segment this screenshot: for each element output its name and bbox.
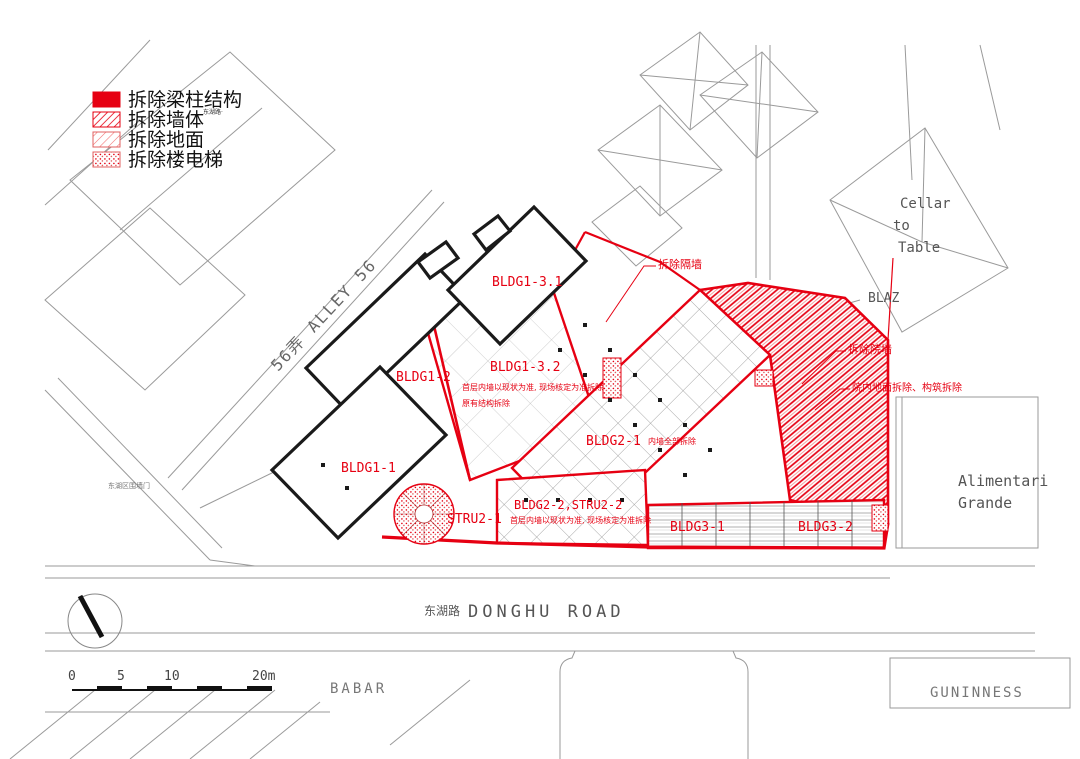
label-cellar-3: Table <box>898 240 940 256</box>
legend-swatch-structure <box>93 92 120 107</box>
label-bldg2-2: BLDG2-2,STRU2-2 <box>514 498 622 512</box>
annotation-partition-wall: 拆除隔墙 <box>658 257 702 271</box>
scale-tick-20m: 20m <box>252 669 276 684</box>
demolition-site-plan: 拆除梁柱结构 拆除墙体 拆除地面 拆除楼电梯 东湖路· BLDG1-1 BLDG… <box>0 0 1080 759</box>
legend-stamp: 东湖路· <box>203 108 223 116</box>
legend-swatch-stair <box>93 152 120 167</box>
scale-tick-10: 10 <box>164 669 180 684</box>
label-guninness: GUNINNESS <box>930 685 1024 701</box>
label-bldg2-1-note: 内墙全部拆除 <box>648 436 696 446</box>
legend-label-structure: 拆除梁柱结构 <box>128 89 242 111</box>
label-bldg1-3-2: BLDG1-3.2 <box>490 360 560 375</box>
label-bldg1-2: BLDG1-2 <box>396 370 451 385</box>
plan-canvas: 拆除梁柱结构 拆除墙体 拆除地面 拆除楼电梯 东湖路· BLDG1-1 BLDG… <box>0 0 1080 759</box>
label-gate: 东湖区围墙门 <box>108 481 150 490</box>
legend-label-floor: 拆除地面 <box>128 129 204 151</box>
legend-swatch-floor <box>93 132 120 147</box>
label-blaz: BLAZ <box>868 291 899 306</box>
note-bldg1-3-2-line1: 首层内墙以现状为准, 现场核定为准拆除 <box>462 382 603 392</box>
label-cellar-1: Cellar <box>900 196 951 212</box>
scale-tick-0: 0 <box>68 669 76 684</box>
north-arrow <box>68 594 122 648</box>
legend-label-wall: 拆除墙体 <box>128 109 204 131</box>
scale-tick-5: 5 <box>117 669 125 684</box>
label-donghu-en: DONGHU ROAD <box>468 602 625 622</box>
note-bldg1-3-2-line2: 原有结构拆除 <box>462 398 510 408</box>
spiral-stair <box>394 484 454 544</box>
legend-swatch-wall <box>93 112 120 127</box>
annotation-courtyard-floor: 院内地面拆除、构筑拆除 <box>852 381 962 394</box>
note-bldg2-2: 首层内墙以现状为准, 现场核定为准拆除 <box>510 515 651 525</box>
legend: 拆除梁柱结构 拆除墙体 拆除地面 拆除楼电梯 东湖路· <box>93 89 242 171</box>
label-alimentari-1: Alimentari <box>958 472 1048 490</box>
scale-bar: 0 5 10 20m <box>68 669 276 690</box>
label-bldg2-1: BLDG2-1 <box>586 434 641 449</box>
label-bldg1-1: BLDG1-1 <box>341 461 396 476</box>
label-stru2-1: STRU2-1 <box>447 512 502 527</box>
annotation-courtyard-wall: 拆除院墙 <box>848 342 892 356</box>
label-babar: BABAR <box>330 681 387 697</box>
stair-patch-2 <box>755 370 773 386</box>
label-bldg3-1: BLDG3-1 <box>670 520 725 535</box>
label-cellar-2: to <box>893 218 910 234</box>
stair-patch-3 <box>872 505 888 531</box>
stair-patch-1 <box>603 358 621 398</box>
label-bldg1-3-1: BLDG1-3.1 <box>492 275 562 290</box>
label-alimentari-2: Grande <box>958 494 1012 512</box>
label-donghu-zh: 东湖路 <box>424 603 460 618</box>
label-bldg3-2: BLDG3-2 <box>798 520 853 535</box>
legend-label-stair: 拆除楼电梯 <box>128 149 223 171</box>
